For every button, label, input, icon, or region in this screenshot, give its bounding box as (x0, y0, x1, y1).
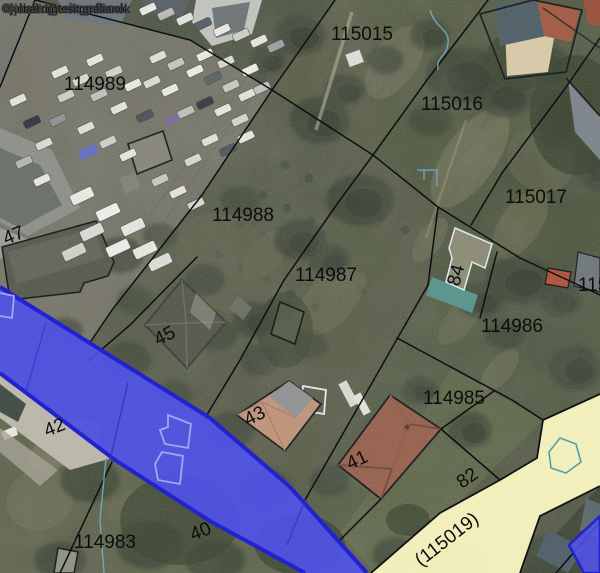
svg-text:114987: 114987 (295, 265, 357, 286)
svg-text:1150: 1150 (578, 275, 600, 296)
svg-text:115016: 115016 (421, 94, 483, 115)
svg-text:115015: 115015 (331, 24, 393, 45)
svg-text:114985: 114985 (423, 388, 485, 409)
svg-text:©jobalirdgtesitrgrafianok: ©jobalirdgtesitrgrafianok (6, 4, 130, 16)
svg-text:114983: 114983 (74, 532, 136, 553)
svg-text:114989: 114989 (64, 74, 126, 95)
svg-text:114988: 114988 (212, 205, 274, 226)
svg-text:114986: 114986 (481, 316, 543, 337)
svg-text:115017: 115017 (505, 187, 567, 208)
